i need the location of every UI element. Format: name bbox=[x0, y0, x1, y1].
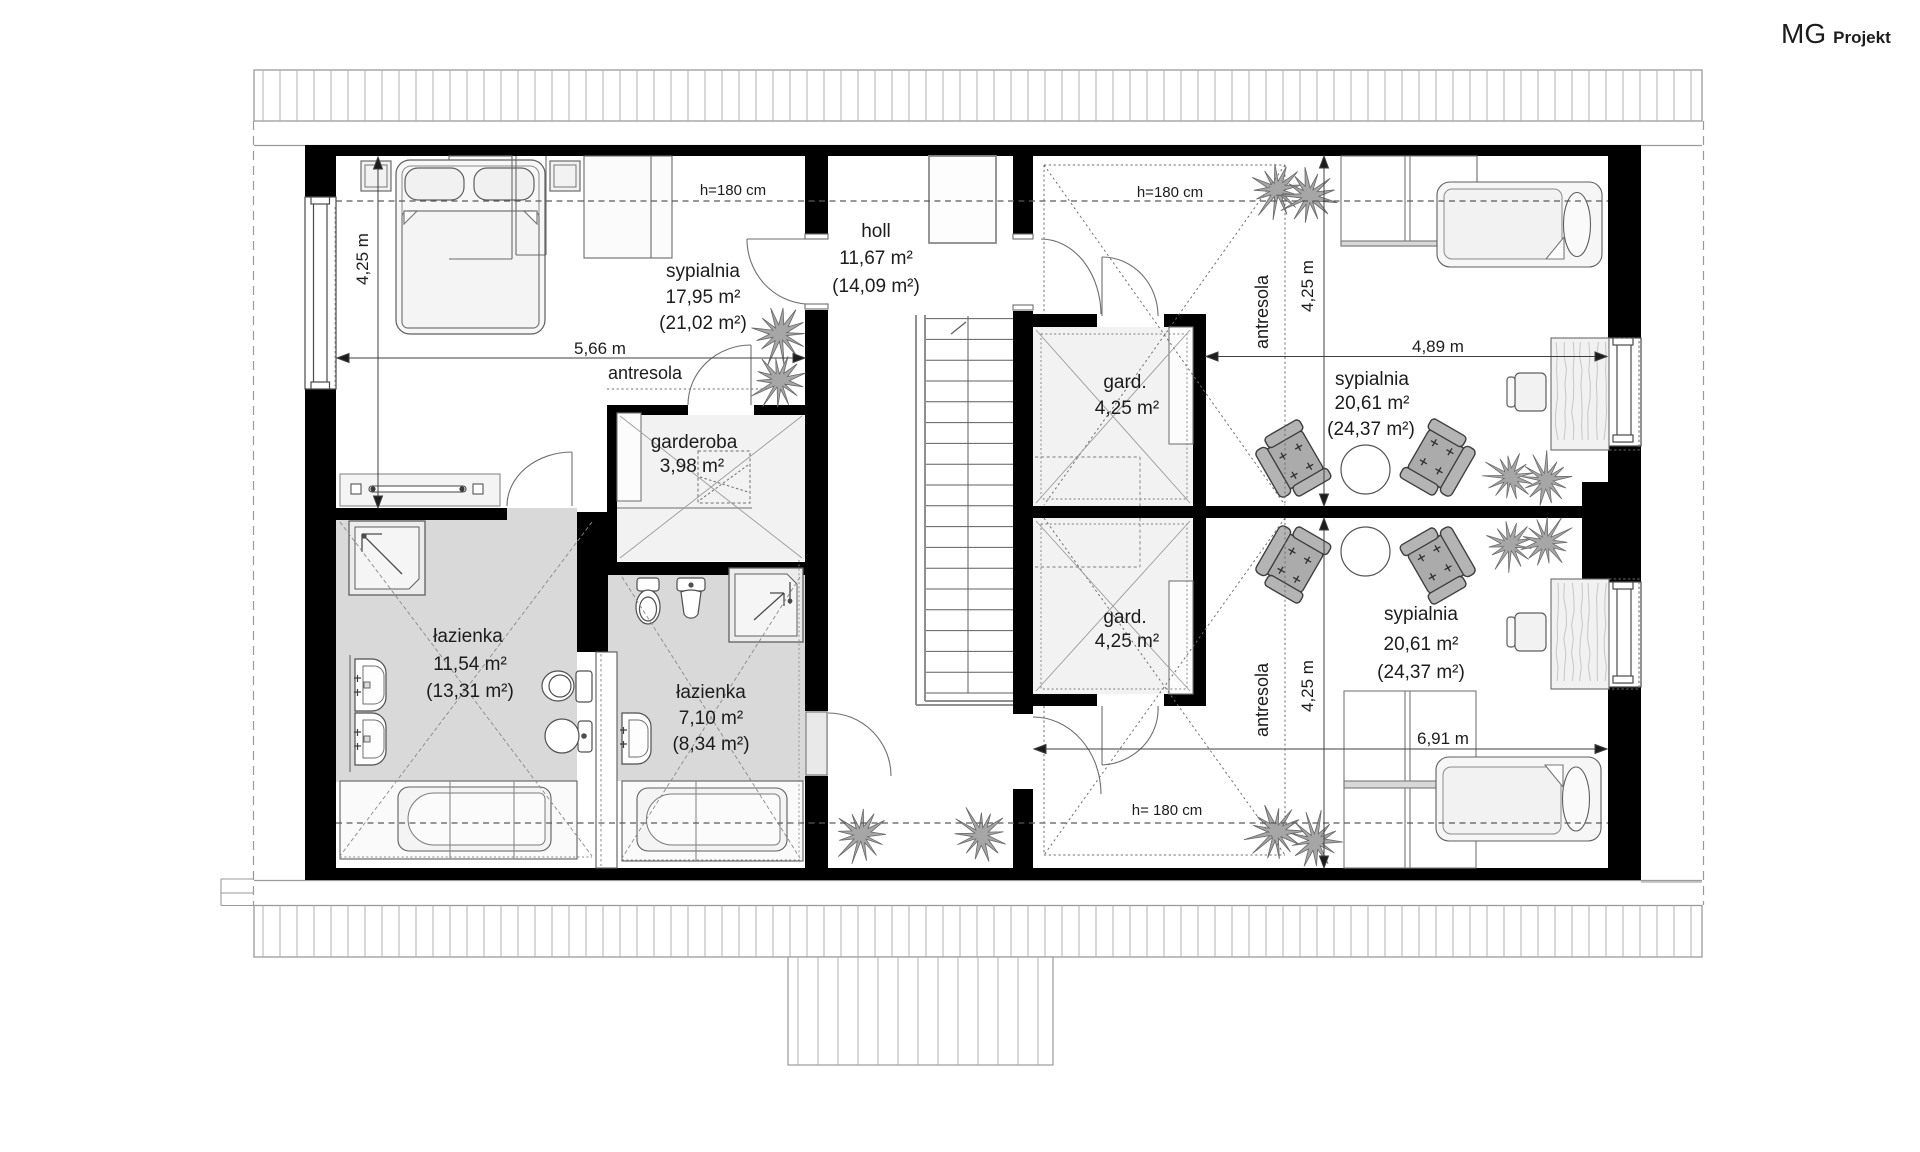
svg-text:(14,09 m²): (14,09 m²) bbox=[832, 276, 920, 297]
svg-text:4,25 m: 4,25 m bbox=[1298, 260, 1317, 312]
svg-text:łazienka: łazienka bbox=[433, 626, 503, 647]
svg-text:4,25 m: 4,25 m bbox=[353, 233, 372, 285]
svg-text:6,91 m: 6,91 m bbox=[1417, 729, 1469, 748]
svg-text:(8,34 m²): (8,34 m²) bbox=[672, 734, 749, 755]
svg-text:4,25 m: 4,25 m bbox=[1298, 660, 1317, 712]
svg-text:4,25 m²: 4,25 m² bbox=[1095, 631, 1159, 652]
svg-text:antresola: antresola bbox=[1252, 662, 1272, 737]
svg-text:łazienka: łazienka bbox=[676, 682, 746, 703]
svg-text:h=180 cm: h=180 cm bbox=[700, 182, 766, 199]
svg-text:(13,31 m²): (13,31 m²) bbox=[426, 681, 514, 702]
svg-text:4,89 m: 4,89 m bbox=[1412, 337, 1464, 356]
svg-text:7,10 m²: 7,10 m² bbox=[679, 708, 743, 729]
svg-text:sypialnia: sypialnia bbox=[1384, 604, 1458, 625]
svg-text:20,61 m²: 20,61 m² bbox=[1384, 634, 1459, 655]
svg-text:17,95 m²: 17,95 m² bbox=[666, 287, 741, 308]
svg-text:3,98 m²: 3,98 m² bbox=[660, 456, 724, 477]
svg-text:antresola: antresola bbox=[608, 363, 683, 383]
svg-text:holl: holl bbox=[861, 221, 891, 242]
svg-text:11,54 m²: 11,54 m² bbox=[433, 654, 507, 675]
svg-text:(24,37 m²): (24,37 m²) bbox=[1327, 419, 1415, 440]
svg-text:20,61 m²: 20,61 m² bbox=[1335, 393, 1410, 414]
svg-text:sypialnia: sypialnia bbox=[666, 261, 740, 282]
svg-text:11,67 m²: 11,67 m² bbox=[839, 248, 913, 269]
svg-text:5,66 m: 5,66 m bbox=[574, 339, 626, 358]
svg-text:garderoba: garderoba bbox=[651, 432, 738, 453]
svg-text:(24,37 m²): (24,37 m²) bbox=[1377, 662, 1465, 683]
svg-text:h= 180 cm: h= 180 cm bbox=[1132, 802, 1202, 819]
svg-text:(21,02 m²): (21,02 m²) bbox=[659, 313, 747, 334]
svg-text:h=180 cm: h=180 cm bbox=[1137, 184, 1203, 201]
svg-text:4,25 m²: 4,25 m² bbox=[1095, 398, 1159, 419]
svg-text:gard.: gard. bbox=[1103, 372, 1146, 393]
svg-text:antresola: antresola bbox=[1252, 274, 1272, 349]
svg-text:sypialnia: sypialnia bbox=[1335, 369, 1409, 390]
svg-text:gard.: gard. bbox=[1103, 607, 1146, 628]
